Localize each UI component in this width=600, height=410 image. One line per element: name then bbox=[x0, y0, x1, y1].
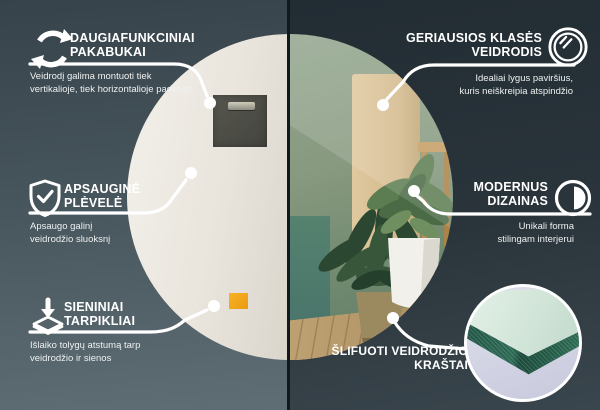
callout-desc-modern-design: Unikali forma stilingam interjerui bbox=[497, 220, 574, 246]
callout-desc-best-class-mirror: Idealiai lygus paviršius, kuris neiškrei… bbox=[459, 72, 573, 98]
callout-title-best-class-mirror: GERIAUSIOS KLASĖS VEIDRODIS bbox=[406, 31, 542, 59]
wall-spacer-icon bbox=[31, 297, 65, 342]
hanger-pad bbox=[213, 95, 267, 147]
split-divider-line bbox=[287, 0, 290, 410]
callout-title-polished-edges: ŠLIFUOTI VEIDRODŽIO KRAŠTAI bbox=[332, 344, 468, 372]
hanger-slot bbox=[228, 102, 255, 110]
shield-check-icon bbox=[28, 179, 62, 222]
mirror-front-reflection bbox=[290, 34, 453, 360]
callout-title-modern-design: MODERNUS DIZAINAS bbox=[473, 180, 548, 208]
callout-desc-wall-spacers: Išlaiko tolygų atstumą tarp veidrodžio i… bbox=[30, 339, 140, 365]
callout-desc-protective-film: Apsaugo galinį veidrodžio sluoksnį bbox=[30, 220, 110, 246]
contrast-circle-icon bbox=[553, 178, 593, 223]
reflected-white-pot-plant bbox=[362, 142, 453, 318]
callout-desc-multifunctional-hangers: Veidrodį galima montuoti tiek vertikalio… bbox=[30, 70, 192, 96]
polished-edge-photo bbox=[464, 284, 582, 402]
mirror-circle-icon bbox=[547, 26, 589, 73]
callout-title-protective-film: APSAUGINĖ PLĖVELĖ bbox=[64, 182, 140, 210]
callout-title-wall-spacers: SIENINIAI TARPIKLIAI bbox=[64, 300, 135, 328]
wall-spacer bbox=[229, 293, 248, 309]
callout-title-multifunctional-hangers: DAUGIAFUNKCINIAI PAKABUKAI bbox=[70, 31, 195, 59]
mirror-infographic: DAUGIAFUNKCINIAI PAKABUKAI Veidrodį gali… bbox=[0, 0, 600, 410]
